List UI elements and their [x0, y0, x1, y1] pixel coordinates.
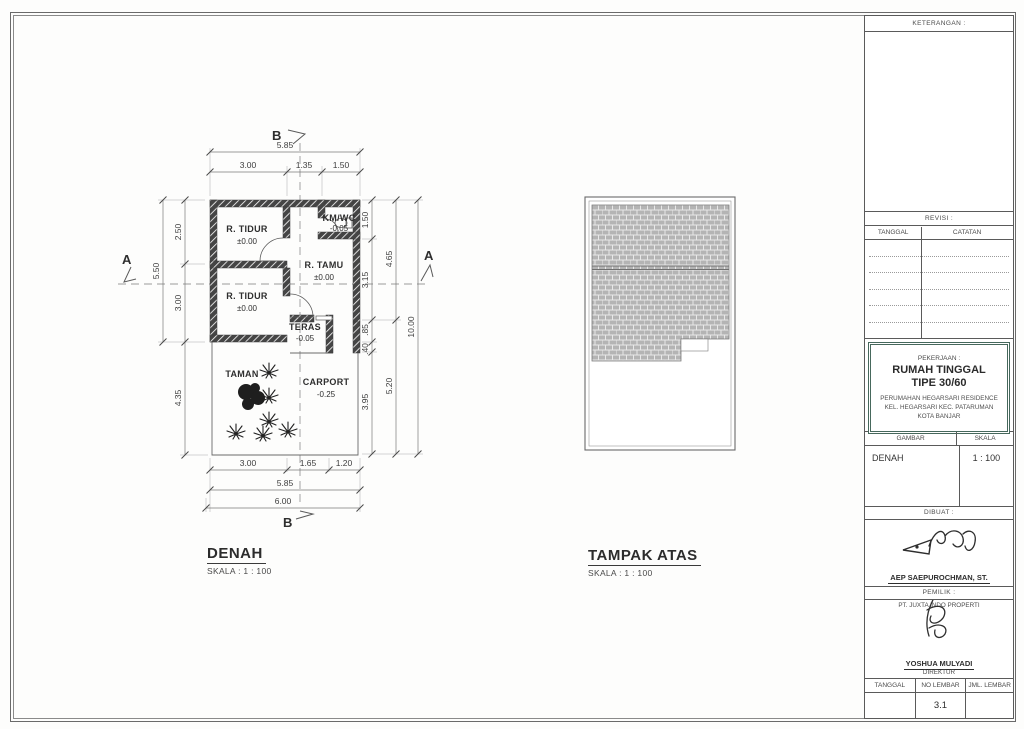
- room-elev-tidur1: ±0.00: [237, 237, 258, 246]
- dim-label: 1.20: [336, 458, 353, 468]
- title-block: KETERANGAN : REVISI : TANGGAL CATATAN: [864, 15, 1014, 719]
- tanggal-value: [865, 693, 916, 718]
- revisi-row: [869, 322, 1009, 323]
- section-lines: [118, 143, 430, 503]
- project-title-line1: RUMAH TINGGAL: [892, 364, 986, 378]
- section-marker-a-left: A: [122, 252, 132, 267]
- dim-label: .40: [360, 343, 370, 355]
- denah-title: DENAH: [207, 545, 266, 564]
- dim-label: 4.65: [384, 250, 394, 267]
- room-elev-teras: -0.05: [296, 334, 315, 343]
- tampak-title: TAMPAK ATAS: [588, 547, 701, 566]
- skala-label: SKALA: [957, 432, 1013, 445]
- revisi-row: [869, 272, 1009, 273]
- dim-label: .85: [360, 324, 370, 336]
- bottom-col-no-lembar: NO LEMBAR: [916, 679, 967, 692]
- dim-label: 5.50: [151, 262, 161, 279]
- gambar-value: DENAH: [865, 446, 960, 506]
- tampak-atas-drawing: [585, 197, 735, 450]
- room-elev-kmwc: -0.05: [330, 224, 349, 233]
- dim-label: 1.35: [296, 160, 313, 170]
- denah-title-block: DENAH SKALA : 1 : 100: [207, 545, 272, 576]
- revisi-row: [869, 305, 1009, 306]
- gambar-label: GAMBAR: [865, 432, 957, 445]
- tampak-scale: SKALA : 1 : 100: [588, 568, 701, 578]
- dibuat-name-text: AEP SAEPUROCHMAN, ST.: [888, 573, 989, 584]
- project-address-line2: KEL. HEGARSARI KEC. PATARUMAN: [885, 403, 994, 412]
- revisi-rows: [865, 240, 1013, 339]
- room-label-tidur2: R. TIDUR: [226, 291, 268, 301]
- keterangan-label: KETERANGAN :: [865, 16, 1013, 32]
- no-lembar-value: 3.1: [916, 693, 967, 718]
- section-marker-b-bottom: B: [283, 515, 292, 530]
- dibuat-label: DIBUAT :: [865, 507, 1013, 520]
- bottom-col-jml-lembar: JML. LEMBAR: [966, 679, 1013, 692]
- revisi-col-catatan: CATATAN: [921, 226, 1013, 239]
- room-elev-tamu: ±0.00: [314, 273, 335, 282]
- dim-label: 3.00: [240, 160, 257, 170]
- dibuat-signature: [865, 520, 1013, 566]
- dibuat-signature-area: AEP SAEPUROCHMAN, ST.: [865, 520, 1013, 586]
- teras-window: [316, 316, 332, 320]
- dim-label: 5.85: [277, 478, 294, 488]
- dim-label: 3.15: [360, 271, 370, 288]
- dim-label: 4.35: [173, 389, 183, 406]
- revisi-col-tanggal: TANGGAL: [865, 226, 921, 239]
- revisi-column-divider: [921, 227, 922, 338]
- pemilik-title: DIREKTUR: [865, 669, 1013, 676]
- roof-step: [681, 339, 708, 351]
- project-address-line3: KOTA BANJAR: [918, 412, 961, 421]
- pekerjaan-box: PEKERJAAN : RUMAH TINGGAL TIPE 30/60 PER…: [868, 342, 1010, 434]
- drawing-sheet: 5.85 3.00 1.35 1.50 3.00 1.65 1.20 5.85 …: [0, 0, 1024, 729]
- pemilik-area: PT. JUXTA INDO PROPERTI YOSHUA MULYADI D…: [865, 599, 1013, 678]
- pemilik-label: PEMILIK :: [865, 586, 1013, 599]
- dim-label: 2.50: [173, 223, 183, 240]
- section-marker-b-top: B: [272, 128, 281, 143]
- skala-value: 1 : 100: [960, 446, 1013, 506]
- dim-label: 5.20: [384, 377, 394, 394]
- denah-plan: 5.85 3.00 1.35 1.50 3.00 1.65 1.20 5.85 …: [118, 128, 434, 530]
- room-label-tamu: R. TAMU: [305, 260, 344, 270]
- pekerjaan-label: PEKERJAAN :: [918, 355, 960, 362]
- dim-label: 3.00: [173, 294, 183, 311]
- pemilik-name: YOSHUA MULYADI: [865, 659, 1013, 668]
- drawings-canvas: 5.85 3.00 1.35 1.50 3.00 1.65 1.20 5.85 …: [0, 0, 862, 729]
- bush-cluster: [238, 383, 265, 410]
- dim-label: 1.50: [360, 211, 370, 228]
- dim-label: 1.65: [300, 458, 317, 468]
- dim-label: 3.95: [360, 393, 370, 410]
- room-label-carport: CARPORT: [303, 377, 350, 387]
- bottom-col-tanggal: TANGGAL: [865, 679, 916, 692]
- pekerjaan-section: PEKERJAAN : RUMAH TINGGAL TIPE 30/60 PER…: [865, 339, 1013, 432]
- revisi-row: [869, 256, 1009, 257]
- pemilik-signature: [865, 600, 1013, 640]
- room-elev-carport: -0.25: [317, 390, 336, 399]
- room-elev-tidur2: ±0.00: [237, 304, 258, 313]
- room-label-kmwc: KM/WC: [323, 213, 356, 223]
- jml-lembar-value: [966, 693, 1013, 718]
- revisi-label: REVISI :: [865, 211, 1013, 226]
- tampak-title-block: TAMPAK ATAS SKALA : 1 : 100: [588, 547, 701, 578]
- dim-label: 6.00: [275, 496, 292, 506]
- dibuat-name: AEP SAEPUROCHMAN, ST.: [865, 573, 1013, 582]
- keterangan-empty-area: [865, 32, 1013, 211]
- project-address-line1: PERUMAHAN HEGARSARI RESIDENCE: [880, 394, 998, 403]
- project-title-line2: TIPE 30/60: [911, 377, 966, 391]
- dim-label: 10.00: [406, 316, 416, 338]
- room-label-teras: TERAS: [289, 322, 321, 332]
- room-label-tidur1: R. TIDUR: [226, 224, 268, 234]
- revisi-row: [869, 289, 1009, 290]
- denah-scale: SKALA : 1 : 100: [207, 566, 272, 576]
- room-label-taman: TAMAN: [225, 369, 258, 379]
- dim-label: 1.50: [333, 160, 350, 170]
- dim-label: 3.00: [240, 458, 257, 468]
- roof-area: [592, 205, 729, 361]
- section-marker-a-right: A: [424, 248, 434, 263]
